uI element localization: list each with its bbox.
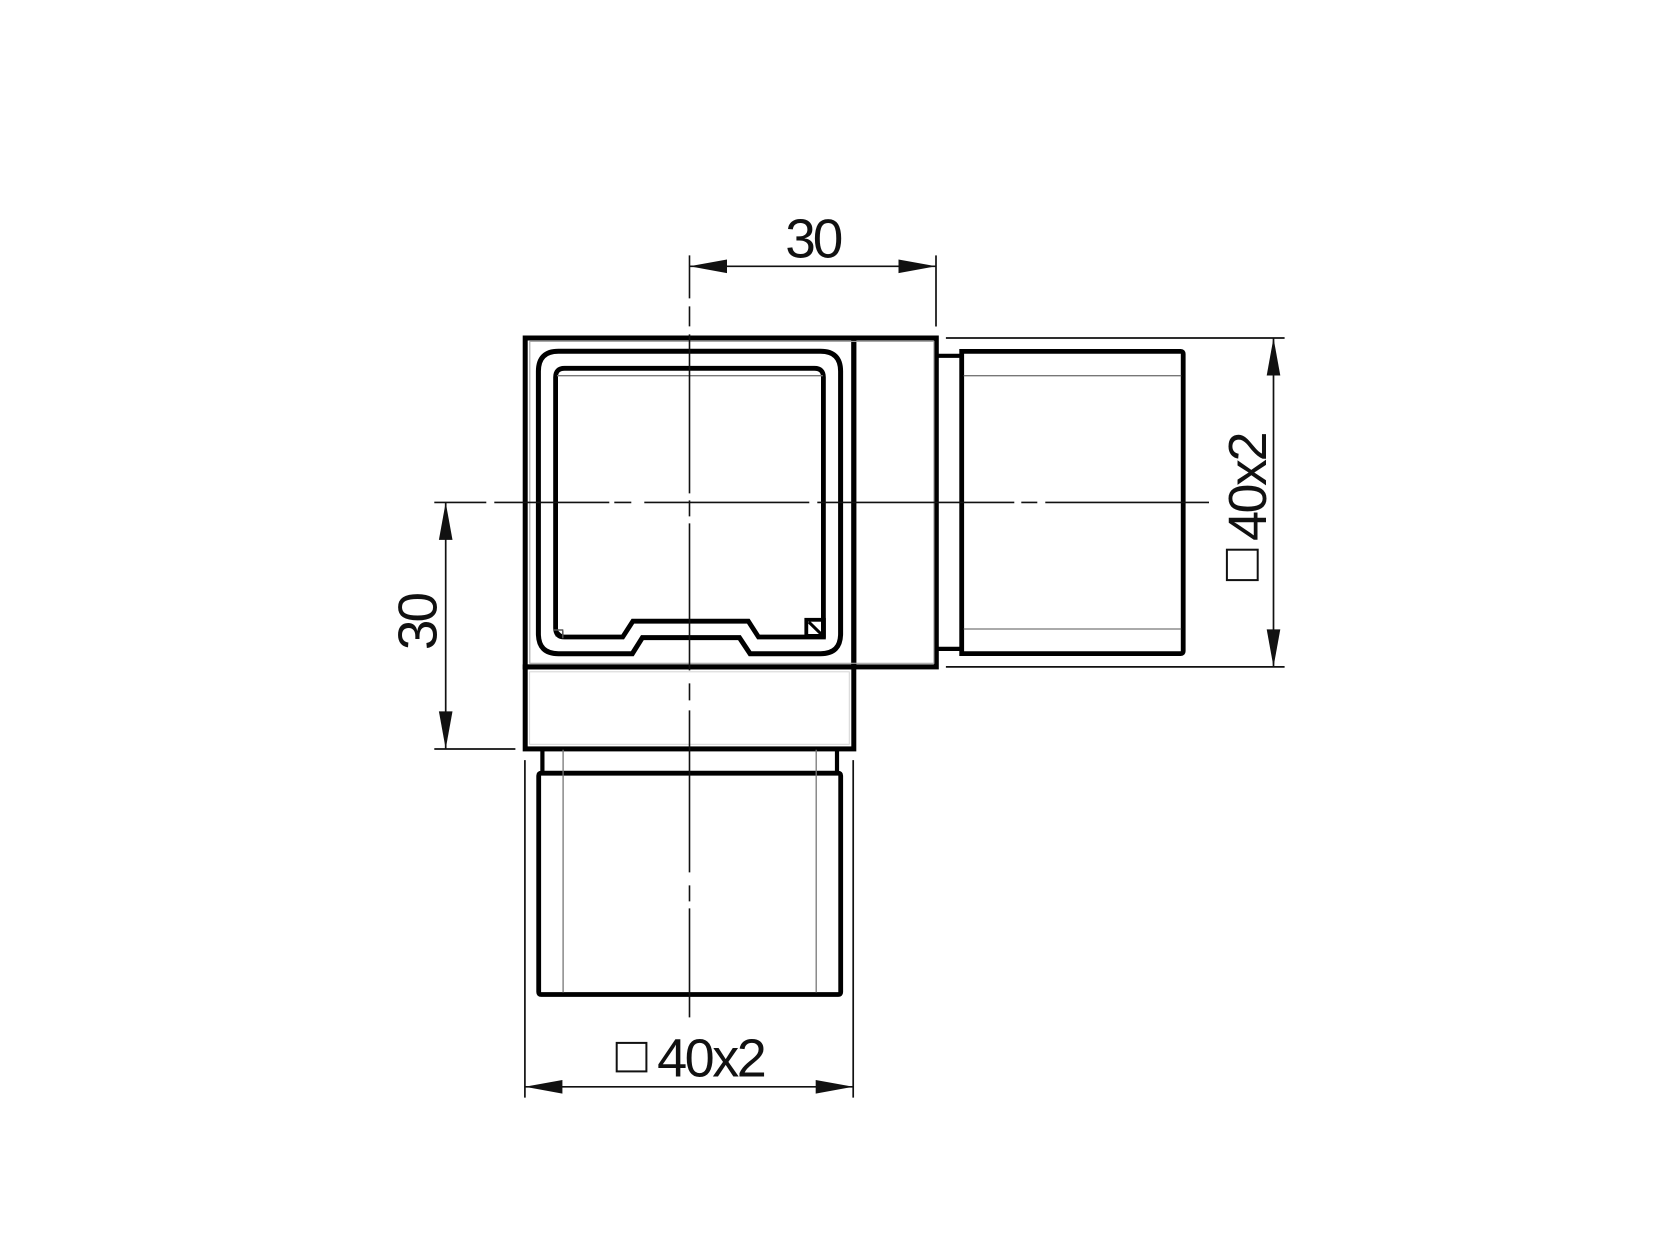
- svg-text:40x2: 40x2: [657, 1028, 765, 1088]
- svg-text:30: 30: [387, 594, 449, 651]
- svg-text:30: 30: [785, 208, 842, 270]
- svg-text:40x2: 40x2: [1218, 433, 1278, 541]
